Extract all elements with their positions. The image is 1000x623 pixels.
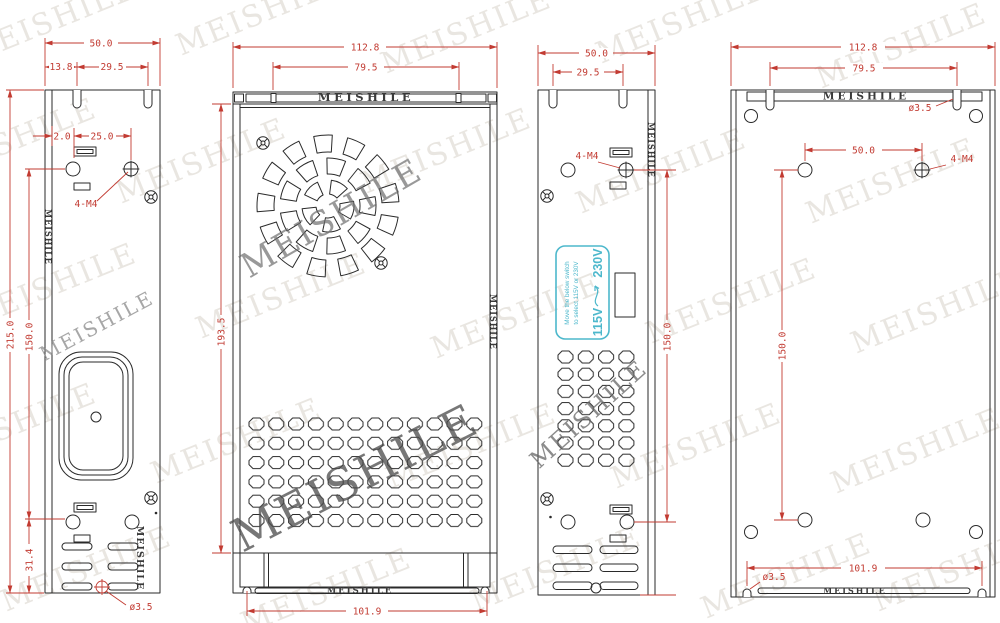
watermark-text: MEISHILE bbox=[0, 376, 102, 476]
watermark-text: MEISHILE bbox=[801, 131, 982, 231]
etched-brand-bottom: MEISHILE bbox=[327, 586, 393, 596]
dim-base-width: 101.9 bbox=[849, 564, 878, 575]
fan-grille-segment bbox=[327, 158, 346, 176]
dim-slot-edge: 2.0 bbox=[53, 132, 70, 143]
dim-hole-height: 150.0 bbox=[25, 322, 36, 351]
dim-notch-offset: 13.8 bbox=[50, 62, 73, 73]
mount-hole bbox=[561, 515, 575, 529]
callout-bottom-notch: ø3.5 bbox=[763, 572, 786, 583]
mount-hole bbox=[66, 162, 80, 176]
callout-mount-holes: 4-M4 bbox=[576, 151, 599, 162]
fan-grille-segment bbox=[314, 135, 333, 153]
dim-base-width: 101.9 bbox=[353, 607, 382, 618]
dim-height: 193.5 bbox=[217, 318, 228, 347]
dim-height: 215.0 bbox=[6, 320, 17, 349]
dim-lid-span: 79.5 bbox=[355, 63, 378, 74]
drawing-svg: MEISHILEMEISHILEMEISHILEMEISHILEMEISHILE… bbox=[0, 0, 1000, 623]
dim-lid-span: 79.5 bbox=[853, 64, 876, 75]
corner-hole bbox=[745, 526, 758, 539]
watermark-text: MEISHILE bbox=[591, 0, 772, 71]
screw-icon bbox=[375, 257, 387, 269]
corner-hole bbox=[745, 110, 758, 123]
fan-grille-segment bbox=[257, 193, 275, 212]
screw-icon bbox=[145, 492, 157, 504]
dim-notch-span: 29.5 bbox=[101, 62, 124, 73]
mount-hole bbox=[916, 513, 930, 527]
watermark-text: MEISHILE bbox=[811, 0, 992, 96]
fan-grille-segment bbox=[296, 161, 318, 183]
corner-hole bbox=[970, 526, 983, 539]
key-notch bbox=[619, 90, 627, 108]
etched-brand-vertical: MEISHILE bbox=[134, 526, 145, 590]
mount-hole bbox=[798, 513, 812, 527]
key-notch bbox=[766, 90, 774, 110]
etched-brand-top: MEISHILE bbox=[318, 90, 414, 104]
fan-grille-segment bbox=[281, 181, 301, 201]
watermark-text: MEISHILE bbox=[376, 0, 557, 81]
key-notch bbox=[953, 90, 961, 110]
dim-bottom-offset: 31.4 bbox=[25, 548, 36, 571]
screw-icon bbox=[541, 190, 553, 202]
fan-grille-segment bbox=[377, 215, 398, 236]
dim-notch-span: 29.5 bbox=[577, 68, 600, 79]
watermark-text: MEISHILE bbox=[466, 519, 647, 619]
dim-width: 112.8 bbox=[849, 43, 878, 54]
dim-width: 50.0 bbox=[585, 49, 608, 60]
voltage-switch[interactable] bbox=[615, 273, 635, 317]
callout-mount-holes: 4-M4 bbox=[75, 199, 98, 210]
callout-mount-holes: 4-M4 bbox=[951, 154, 974, 165]
watermark-text: MEISHILE bbox=[846, 261, 1000, 361]
watermark-text: MEISHILE bbox=[171, 0, 352, 63]
fan-grille-segment bbox=[343, 138, 365, 160]
bottom-tab bbox=[743, 589, 751, 597]
dim-hole-height: 150.0 bbox=[778, 331, 789, 360]
view-right-side-panel: Move the below switch to select 115V or … bbox=[538, 45, 676, 595]
watermark-text: MEISHILE bbox=[0, 91, 102, 191]
voltage-low: 115V bbox=[591, 307, 605, 336]
callout-top-notch: ø3.5 bbox=[909, 103, 932, 114]
dim-width: 50.0 bbox=[90, 39, 113, 50]
corner-hole bbox=[970, 110, 983, 123]
etched-brand-vertical: MEISHILE bbox=[647, 122, 657, 178]
watermark-text: MEISHILE bbox=[826, 401, 1000, 501]
key-notch bbox=[144, 90, 152, 108]
dim-hole-pitch: 50.0 bbox=[852, 146, 875, 157]
voltage-high: 230V bbox=[591, 248, 605, 278]
watermark-text: MEISHILE bbox=[0, 0, 142, 71]
etched-brand-top: MEISHILE bbox=[823, 91, 909, 103]
mount-hole bbox=[66, 515, 80, 529]
bottom-hole-cluster bbox=[541, 493, 634, 542]
fan-grille-segment bbox=[263, 162, 286, 185]
key-notch bbox=[549, 90, 557, 108]
dim-hole-height: 150.0 bbox=[663, 322, 674, 351]
bottom-tab bbox=[978, 589, 986, 597]
etched-brand-bottom: MEISHILE bbox=[823, 586, 887, 596]
dim-hole-pitch: 25.0 bbox=[91, 132, 114, 143]
etched-brand-vertical: MEISHILE bbox=[489, 294, 499, 350]
voltage-label-line2: to select 115V or 230V bbox=[573, 261, 580, 325]
voltage-label-line1: Move the below switch bbox=[564, 261, 571, 325]
watermark-text: MEISHILE bbox=[571, 121, 752, 221]
bottom-hole bbox=[591, 583, 601, 593]
callout-corner-hole: ø3.5 bbox=[130, 602, 153, 613]
key-notch bbox=[73, 90, 81, 108]
etched-brand-vertical: MEISHILE bbox=[44, 209, 54, 265]
dim-width: 112.8 bbox=[351, 43, 380, 54]
mount-hole bbox=[561, 163, 575, 177]
watermark-text: MEISHILE bbox=[111, 111, 292, 211]
fan-grille-segment bbox=[305, 182, 324, 201]
mount-hole bbox=[798, 163, 812, 177]
screw-icon bbox=[541, 493, 553, 505]
watermark-text: MEISHILE bbox=[696, 526, 877, 623]
technical-drawing-canvas: MEISHILEMEISHILEMEISHILEMEISHILEMEISHILE… bbox=[0, 0, 1000, 623]
fan-grille-segment bbox=[361, 238, 385, 262]
watermark-text: MEISHILE bbox=[868, 519, 1000, 619]
